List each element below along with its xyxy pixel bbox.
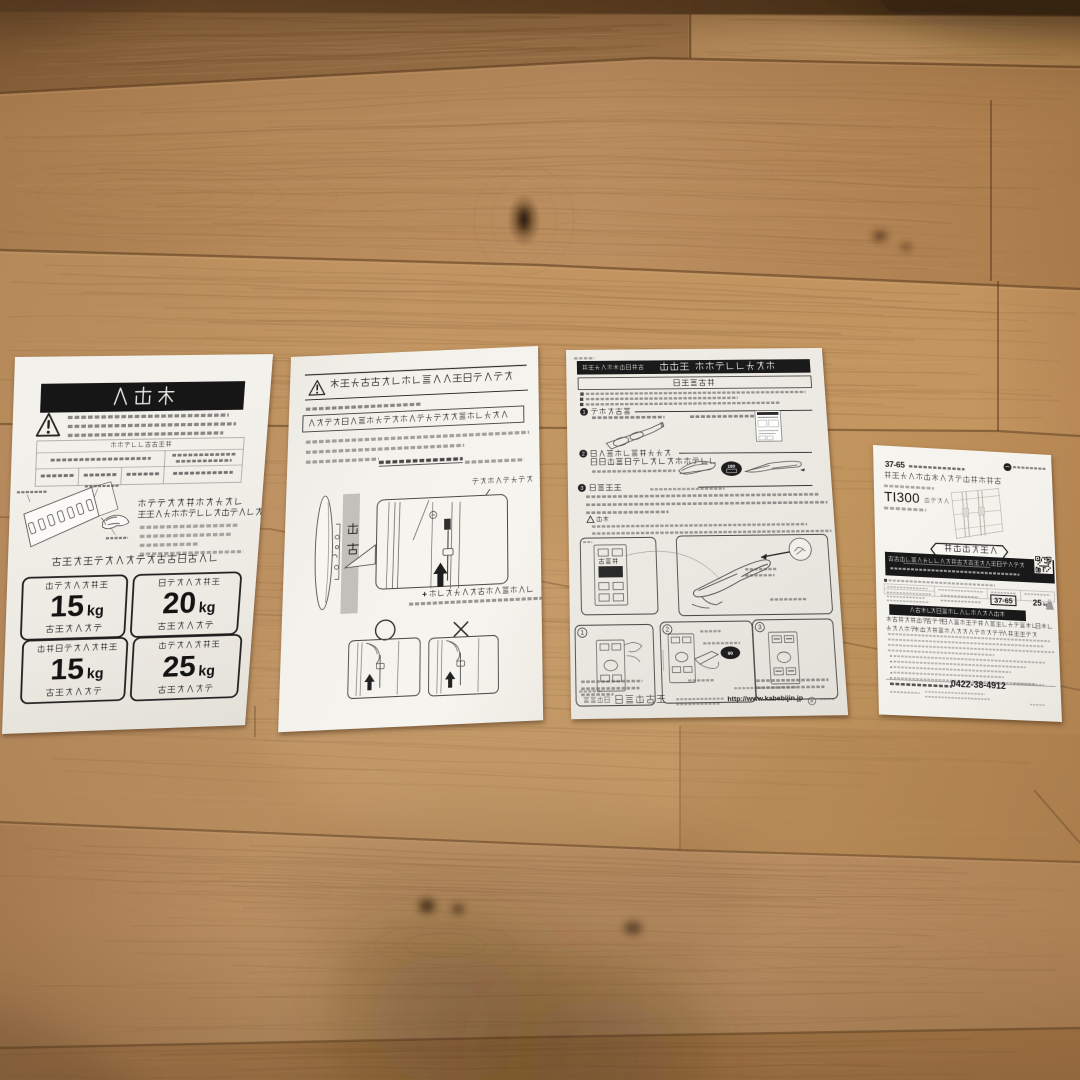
svg-text:25: 25 [162, 650, 197, 683]
svg-text:2: 2 [666, 627, 670, 634]
svg-text:kg: kg [86, 666, 103, 681]
svg-text:25: 25 [1033, 598, 1043, 608]
svg-text:37-65: 37-65 [885, 460, 906, 470]
svg-text:R: R [810, 699, 814, 704]
svg-text:37-65: 37-65 [994, 596, 1013, 606]
svg-text:2: 2 [582, 451, 585, 457]
svg-text:kg: kg [87, 603, 105, 619]
svg-text:180: 180 [727, 463, 736, 468]
svg-text:15: 15 [49, 590, 84, 624]
svg-text:http://www.kabebijin.jp: http://www.kabebijin.jp [727, 694, 803, 703]
svg-text:20: 20 [162, 587, 198, 621]
svg-text:1: 1 [582, 410, 585, 416]
svg-text:3: 3 [758, 625, 762, 632]
svg-text:1: 1 [581, 630, 585, 637]
svg-text:15: 15 [50, 653, 85, 687]
svg-text:3: 3 [580, 486, 583, 492]
svg-text:kg: kg [198, 664, 215, 679]
svg-text:TI300: TI300 [884, 489, 920, 506]
svg-text:0422-38-4912: 0422-38-4912 [951, 678, 1006, 691]
svg-text:+: + [422, 589, 428, 599]
svg-text:kg: kg [198, 600, 216, 616]
